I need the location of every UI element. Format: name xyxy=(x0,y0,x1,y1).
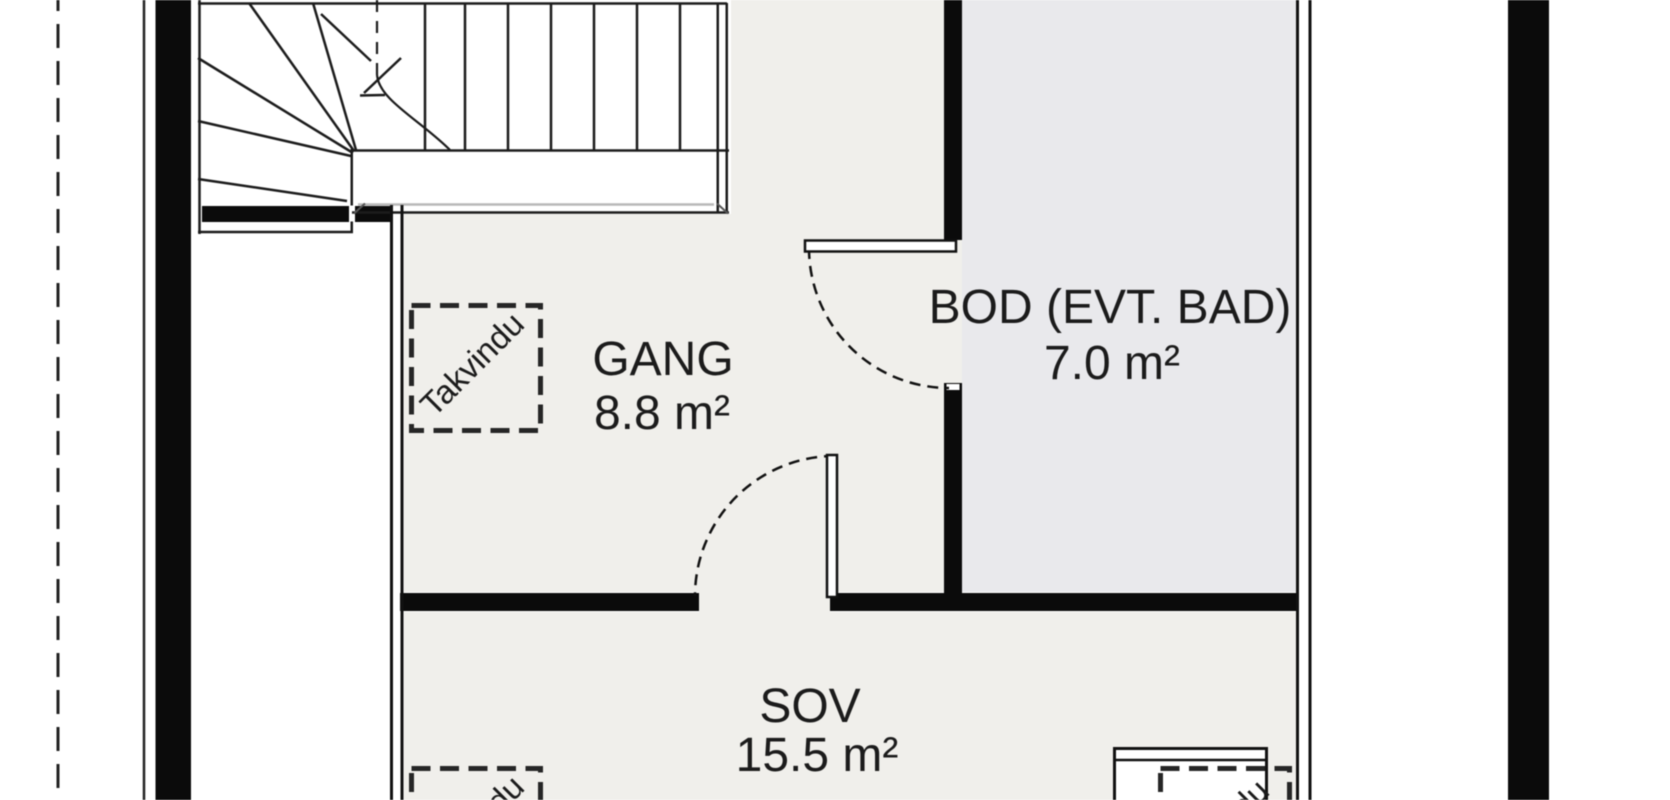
svg-text:15.5 m²: 15.5 m² xyxy=(736,729,899,782)
svg-text:GANG: GANG xyxy=(592,333,733,386)
svg-text:7.0 m²: 7.0 m² xyxy=(1044,337,1180,390)
svg-text:BOD (EVT. BAD): BOD (EVT. BAD) xyxy=(929,281,1292,334)
svg-text:8.8 m²: 8.8 m² xyxy=(594,387,730,440)
svg-text:SOV: SOV xyxy=(759,680,860,733)
